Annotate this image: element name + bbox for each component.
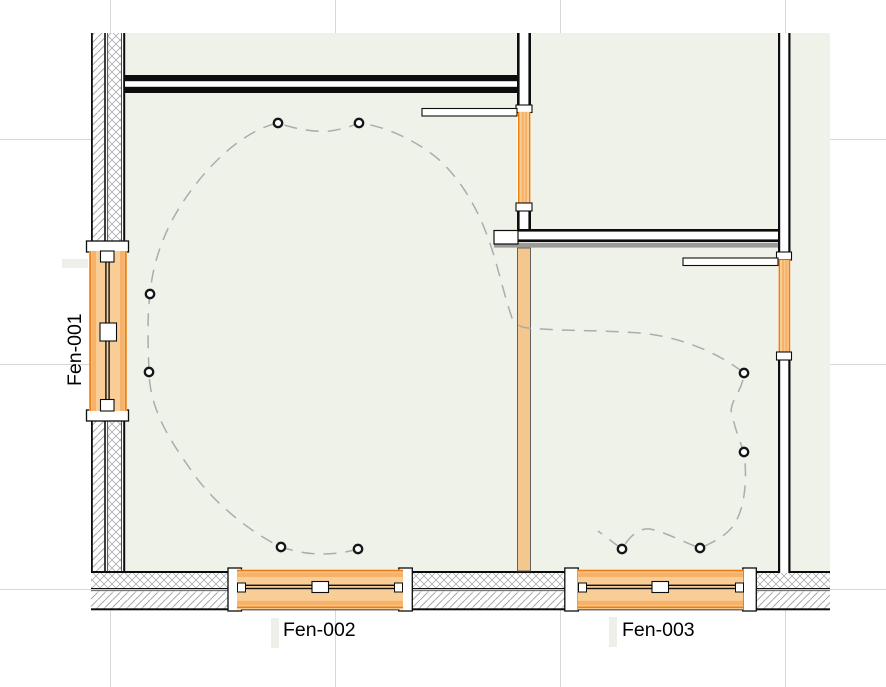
label-fen-002[interactable]: Fen-002 <box>271 618 356 648</box>
center-partition-wall[interactable] <box>516 33 532 571</box>
route-node-marker[interactable] <box>277 543 285 551</box>
floor-plan-canvas: Fen-001 Fen-002 Fen-003 <box>0 0 886 687</box>
wall-end-cap <box>494 231 518 245</box>
label-fen-001[interactable]: Fen-001 <box>62 259 88 386</box>
window-fen-001[interactable] <box>87 241 129 421</box>
interior-window-symbol[interactable] <box>516 105 532 211</box>
window-label-text[interactable]: Fen-003 <box>622 619 695 641</box>
lintel-bar-center <box>422 109 517 117</box>
lintel-bar-right <box>683 258 778 266</box>
route-node-marker[interactable] <box>618 545 626 553</box>
right-wall-window-symbol[interactable] <box>777 252 792 360</box>
label-highlight <box>609 617 617 647</box>
room-fill-region <box>91 33 830 610</box>
interior-wall-top-left[interactable] <box>125 75 517 93</box>
route-node-marker[interactable] <box>146 290 154 298</box>
left-wall-top-segment <box>91 33 125 241</box>
route-node-marker[interactable] <box>354 545 362 553</box>
right-exterior-wall[interactable] <box>777 33 792 573</box>
label-highlight <box>271 618 279 648</box>
window-fen-002[interactable] <box>228 568 412 611</box>
label-fen-003[interactable]: Fen-003 <box>609 617 695 647</box>
orange-partition-wall <box>518 248 531 571</box>
route-node-marker[interactable] <box>740 369 748 377</box>
window-label-text[interactable]: Fen-002 <box>283 619 356 641</box>
route-node-marker[interactable] <box>696 544 704 552</box>
label-highlight <box>62 259 88 268</box>
window-fen-003[interactable] <box>565 568 757 611</box>
window-label-text[interactable]: Fen-001 <box>64 313 86 386</box>
interior-wall-top-right[interactable] <box>494 229 779 248</box>
route-node-marker[interactable] <box>355 119 363 127</box>
wall-finish-stripe <box>494 243 778 248</box>
route-node-marker[interactable] <box>274 119 282 127</box>
route-node-marker[interactable] <box>740 448 748 456</box>
route-node-marker[interactable] <box>145 368 153 376</box>
